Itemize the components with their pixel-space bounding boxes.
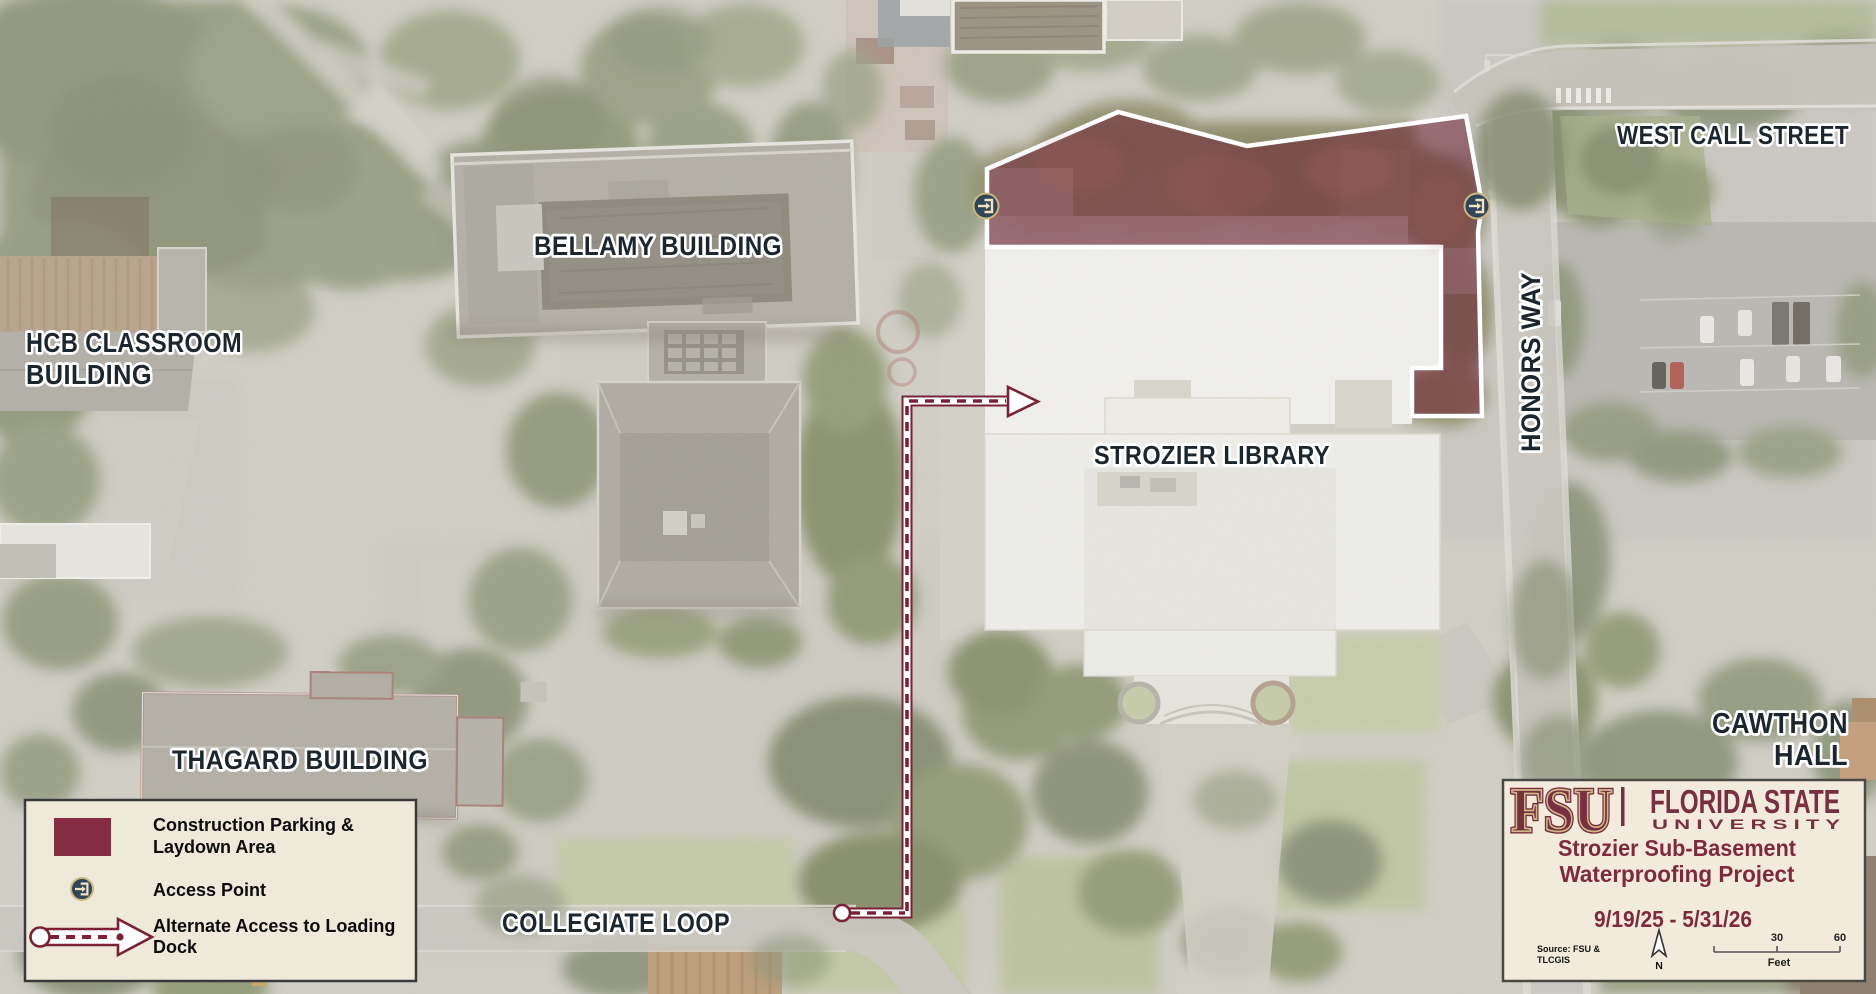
svg-text:WEST CALL STREET: WEST CALL STREET [1617, 120, 1849, 150]
svg-text:60: 60 [1834, 932, 1846, 944]
svg-text:Alternate Access to Loading: Alternate Access to Loading [153, 916, 395, 936]
svg-text:THAGARD BUILDING: THAGARD BUILDING [172, 745, 428, 775]
svg-text:TLCGIS: TLCGIS [1537, 955, 1570, 965]
svg-text:Feet: Feet [1768, 957, 1791, 969]
svg-text:HONORS WAY: HONORS WAY [1516, 272, 1546, 452]
svg-text:U N I V E R S I T Y: U N I V E R S I T Y [1652, 816, 1841, 832]
svg-text:Strozier Sub-Basement: Strozier Sub-Basement [1558, 835, 1796, 861]
svg-text:30: 30 [1771, 932, 1783, 944]
svg-text:Access Point: Access Point [153, 880, 266, 900]
svg-text:BUILDING: BUILDING [26, 359, 152, 390]
svg-text:BELLAMY BUILDING: BELLAMY BUILDING [534, 231, 782, 261]
svg-text:STROZIER LIBRARY: STROZIER LIBRARY [1094, 440, 1330, 470]
svg-text:COLLEGIATE LOOP: COLLEGIATE LOOP [502, 908, 730, 938]
svg-text:Waterproofing Project: Waterproofing Project [1560, 861, 1795, 887]
svg-text:HALL: HALL [1774, 740, 1848, 772]
svg-text:Construction Parking &: Construction Parking & [153, 815, 354, 835]
svg-text:Source: FSU &: Source: FSU & [1537, 944, 1601, 954]
svg-text:N: N [1655, 960, 1663, 972]
svg-text:CAWTHON: CAWTHON [1712, 708, 1848, 740]
svg-text:Dock: Dock [153, 937, 198, 957]
svg-text:9/19/25 - 5/31/26: 9/19/25 - 5/31/26 [1594, 906, 1752, 932]
svg-text:FLORIDA STATE: FLORIDA STATE [1650, 783, 1840, 820]
svg-text:HCB CLASSROOM: HCB CLASSROOM [26, 327, 242, 358]
svg-text:Laydown Area: Laydown Area [153, 837, 276, 857]
